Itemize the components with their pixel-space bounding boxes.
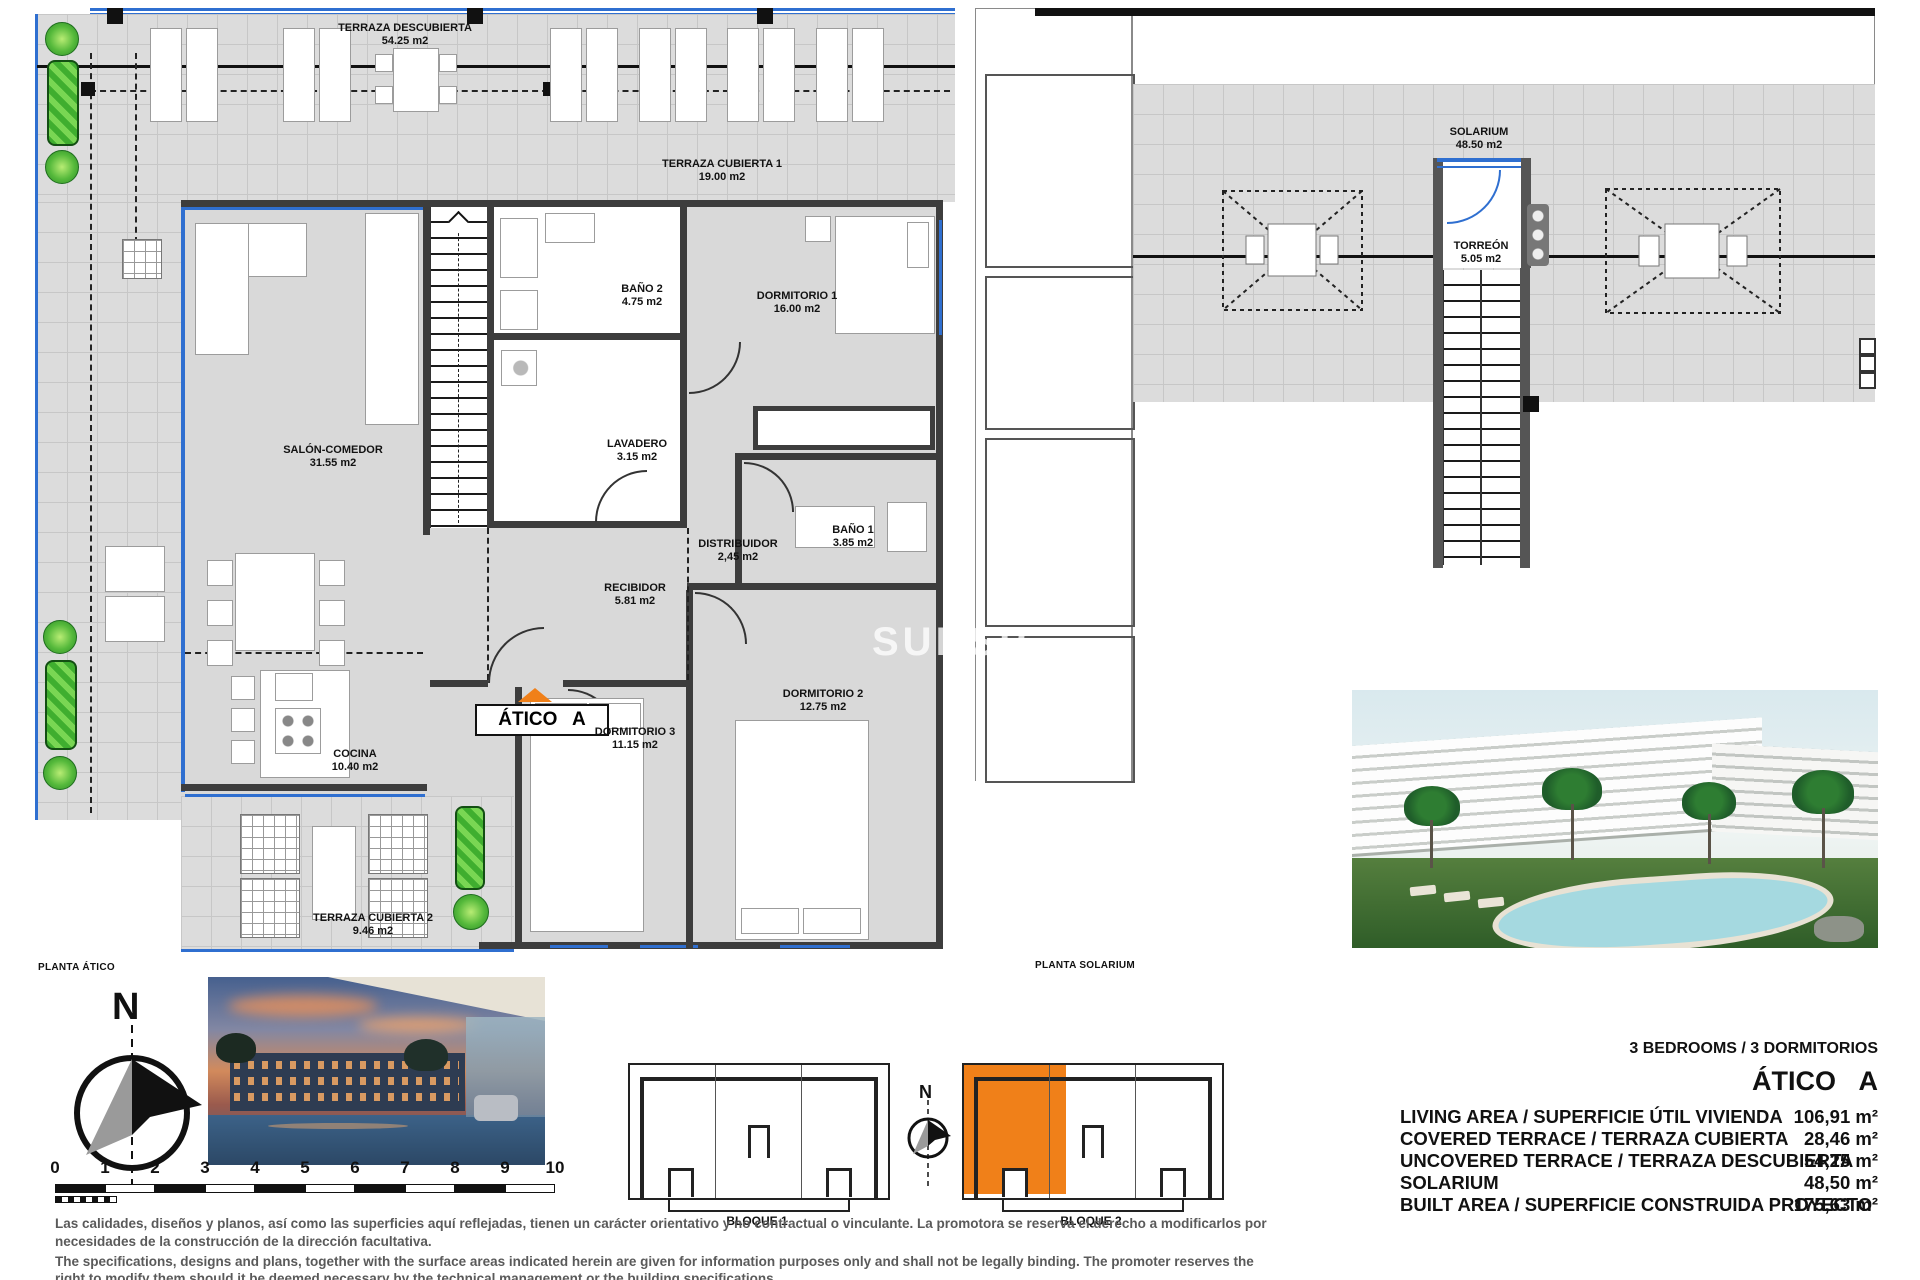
scale-tick: 0 (50, 1158, 59, 1178)
sun-lounger (675, 28, 707, 122)
column (107, 8, 123, 24)
bedrooms-line: 3 BEDROOMS / 3 DORMITORIOS (1629, 1040, 1878, 1058)
room-label-lavadero: LAVADERO3.15 m2 (607, 438, 667, 464)
stove (275, 708, 321, 754)
wall (563, 680, 693, 687)
tv-unit (365, 213, 419, 425)
area-summary: 3 BEDROOMS / 3 DORMITORIOS ÁTICO A LIVIN… (1400, 1040, 1878, 1210)
wall (680, 207, 687, 338)
pergola (1603, 186, 1783, 316)
dining-chair (207, 640, 233, 666)
scale-tick: 6 (350, 1158, 359, 1178)
dining-chair (207, 560, 233, 586)
wall (494, 521, 687, 528)
staircase (430, 207, 489, 528)
summary-row-value: 106,91 m² (1794, 1106, 1878, 1128)
nightstand (805, 216, 831, 242)
unit-badge: ÁTICO A (475, 704, 609, 736)
room-label-bano1: BAÑO 13.85 m2 (832, 524, 874, 550)
railing-top (90, 8, 955, 11)
window-glass (939, 220, 942, 335)
pillow (741, 908, 799, 934)
scale-tick: 10 (546, 1158, 565, 1178)
disclaimer-es-2: necesidades de la construcción de la dir… (55, 1234, 432, 1249)
shaft (985, 276, 1135, 430)
boundary-dashed-v2 (135, 53, 137, 243)
room-label-dormitorio2: DORMITORIO 212.75 m2 (783, 688, 863, 714)
wall (735, 453, 943, 460)
dining-table (235, 553, 315, 651)
resort-photo (1352, 690, 1878, 948)
scale-tick: 1 (100, 1158, 109, 1178)
sun-lounger (186, 28, 218, 122)
railing-left (35, 14, 38, 820)
palm-silhouette (404, 1039, 448, 1071)
window-glass (1437, 166, 1521, 168)
entrance-arrow (518, 688, 552, 702)
shaft (985, 438, 1135, 627)
dining-chair (207, 600, 233, 626)
wall (1433, 158, 1443, 268)
plant (453, 894, 489, 930)
room-label-terraza-cubierta1: TERRAZA CUBIERTA 119.00 m2 (662, 158, 782, 184)
wall (735, 453, 742, 590)
scale-tick: 2 (150, 1158, 159, 1178)
terrace-chair (375, 54, 393, 72)
window-glass (185, 794, 425, 797)
sun-lounger (550, 28, 582, 122)
disclaimer-es-1: Las calidades, diseños y planos, así com… (55, 1216, 1267, 1231)
wall (430, 680, 488, 687)
summary-row-value: 175,63 m² (1794, 1194, 1878, 1216)
stairs-centerline (458, 213, 459, 523)
room-divider-dashed (487, 528, 489, 680)
terrace-chair (439, 86, 457, 104)
column (1859, 338, 1876, 355)
summary-row-label: COVERED TERRACE / TERRAZA CUBIERTA (1400, 1128, 1789, 1150)
railing-bottom (181, 949, 514, 952)
room-label-terraza-cubierta2: TERRAZA CUBIERTA 29.46 m2 (313, 912, 433, 938)
window-glass (181, 207, 185, 792)
cloud (358, 1017, 478, 1033)
room-label-distribuidor: DISTRIBUIDOR2,45 m2 (698, 538, 777, 564)
terrace-seat (105, 596, 165, 642)
staircase-solarium (1443, 270, 1522, 565)
toilet (500, 290, 538, 330)
summary-row-value: 28,46 m² (1804, 1128, 1878, 1150)
floorplan-atico: ÁTICO A TERRAZA DESCUBIERTA54.25 m2 TERR… (35, 8, 957, 956)
dining-chair (319, 640, 345, 666)
summary-row-value: 54,25 m² (1804, 1150, 1878, 1172)
wall (494, 333, 687, 340)
terrace-side-table (122, 239, 162, 279)
kitchen-stool (231, 740, 255, 764)
palm-trunk (1571, 804, 1574, 860)
shower (500, 218, 538, 278)
sun-lounger (727, 28, 759, 122)
terrace-table (312, 826, 356, 920)
railing-top2 (90, 13, 955, 14)
keyplan-bloque1 (628, 1063, 890, 1200)
sun-lounger (763, 28, 795, 122)
sun-lounger (150, 28, 182, 122)
boundary-dashed-v1 (90, 53, 92, 813)
washbasin (545, 213, 595, 243)
scale-tick: 4 (250, 1158, 259, 1178)
terrace-chair (439, 54, 457, 72)
wall (680, 338, 687, 528)
terrace-chair (375, 86, 393, 104)
room-label-recibidor: RECIBIDOR5.81 m2 (604, 582, 666, 608)
column (1859, 372, 1876, 389)
wall (687, 583, 943, 590)
pergola (1220, 188, 1365, 313)
toilet (887, 502, 927, 552)
sun-lounger (852, 28, 884, 122)
svg-text:N: N (112, 986, 139, 1028)
vent-block (1527, 204, 1549, 266)
scale-tick: 8 (450, 1158, 459, 1178)
kitchen-stool (231, 676, 255, 700)
hedge-plant (455, 806, 485, 890)
palm-trunk (1430, 820, 1433, 868)
plan-solarium-title: PLANTA SOLARIUM (1035, 960, 1135, 971)
bed (735, 720, 869, 940)
sun-lounger (816, 28, 848, 122)
lit-windows (234, 1093, 459, 1101)
hedge-plant (47, 60, 79, 146)
sun-lounger (283, 28, 315, 122)
window-glass (1437, 158, 1521, 162)
bloque1-brace (668, 1200, 850, 1212)
scale-bar-strip (55, 1184, 555, 1193)
kitchen-stool (231, 708, 255, 732)
summary-row-label: SOLARIUM (1400, 1172, 1499, 1194)
window-glass (550, 945, 608, 948)
plant (43, 620, 77, 654)
lit-windows (234, 1077, 459, 1085)
column (757, 8, 773, 24)
keyplan-bloque2 (962, 1063, 1224, 1200)
terrace-armchair (240, 878, 300, 938)
stairs-handrail (1480, 270, 1482, 565)
room-label-solarium: SOLARIUM48.50 m2 (1450, 126, 1509, 152)
watermark: SUNSP (872, 620, 1030, 665)
room-label-dormitorio1: DORMITORIO 116.00 m2 (757, 290, 837, 316)
wall (423, 207, 430, 535)
north-arrow-icon: N (905, 1080, 957, 1190)
scale-tick: 7 (400, 1158, 409, 1178)
scale-tick: 3 (200, 1158, 209, 1178)
wall (181, 784, 427, 791)
unit-title: ÁTICO A (1752, 1066, 1878, 1097)
pillow (803, 908, 861, 934)
palm-trunk (1822, 808, 1825, 868)
pillow (907, 222, 929, 268)
roof-edge (1035, 8, 1875, 16)
plan-sheet: ÁTICO A TERRAZA DESCUBIERTA54.25 m2 TERR… (0, 0, 1920, 1280)
plan-atico-title: PLANTA ÁTICO (38, 962, 115, 973)
plant (45, 150, 79, 184)
dining-chair (319, 600, 345, 626)
terrace-seat (105, 546, 165, 592)
room-label-torreon: TORREÓN5.05 m2 (1454, 240, 1509, 266)
room-label-dormitorio3: DORMITORIO 311.15 m2 (595, 726, 675, 752)
washing-machine (501, 350, 537, 386)
room-label-cocina: COCINA10.40 m2 (332, 748, 378, 774)
disclaimer-en-1: The specifications, designs and plans, t… (55, 1254, 1254, 1269)
terrace-table (393, 48, 439, 112)
summary-row-label: UNCOVERED TERRACE / TERRAZA DESCUBIERTA (1400, 1150, 1853, 1172)
plant (45, 22, 79, 56)
stone-path (1814, 916, 1864, 942)
palm-trunk (1708, 814, 1711, 864)
terrace-armchair (368, 814, 428, 874)
window-glass (780, 945, 850, 948)
window-glass (185, 207, 425, 210)
column (1859, 355, 1876, 372)
scale-bar-subdivisions (55, 1196, 117, 1203)
room-label-salon: SALÓN-COMEDOR31.55 m2 (283, 444, 383, 470)
svg-text:N: N (919, 1082, 932, 1102)
column (81, 82, 95, 96)
wall (1433, 268, 1443, 568)
disclaimer-en-2: right to modify them should it be deemed… (55, 1271, 777, 1280)
room-label-terraza-descubierta: TERRAZA DESCUBIERTA54.25 m2 (338, 22, 472, 48)
shaft (985, 74, 1135, 268)
plan-border (975, 8, 976, 781)
wall (181, 200, 943, 207)
wall (1520, 268, 1530, 568)
wardrobe (753, 406, 935, 450)
scale-tick: 5 (300, 1158, 309, 1178)
summary-row-label: LIVING AREA / SUPERFICIE ÚTIL VIVIENDA (1400, 1106, 1783, 1128)
room-label-bano2: BAÑO 24.75 m2 (621, 283, 663, 309)
hedge-plant (45, 660, 77, 750)
scale-tick: 9 (500, 1158, 509, 1178)
terrace-furniture (474, 1095, 518, 1121)
dining-chair (319, 560, 345, 586)
sun-lounger (639, 28, 671, 122)
wall (479, 942, 943, 949)
plant (43, 756, 77, 790)
sofa (195, 223, 249, 355)
pool-reflection (268, 1123, 408, 1129)
palm-silhouette (216, 1033, 256, 1063)
cloud (228, 995, 378, 1017)
room-divider-dashed (687, 528, 689, 680)
summary-row-value: 48,50 m² (1804, 1172, 1878, 1194)
scale-bar: 0 1 2 3 4 5 6 7 8 9 10 (55, 1158, 565, 1206)
bloque2-brace (1002, 1200, 1184, 1212)
sun-lounger (586, 28, 618, 122)
kitchen-cabinet (275, 673, 313, 701)
dusk-photo (208, 977, 545, 1165)
column (1523, 396, 1539, 412)
terrace-armchair (240, 814, 300, 874)
wall (487, 207, 494, 528)
